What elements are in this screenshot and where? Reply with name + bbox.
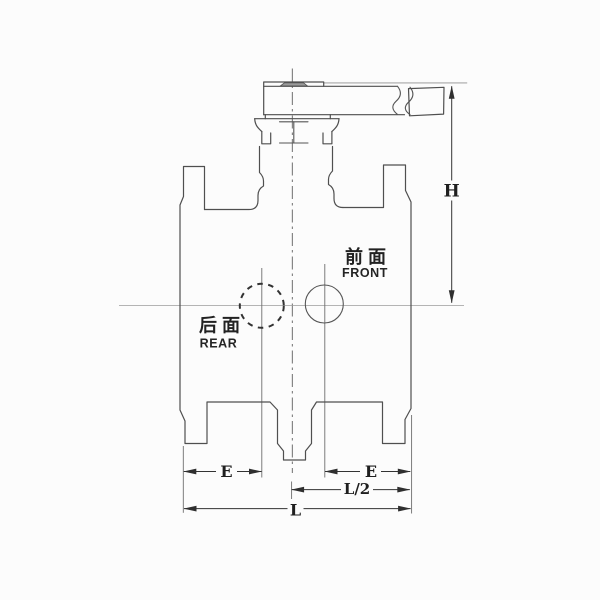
handle-end-piece	[409, 87, 445, 116]
dim-label-l2: L/2	[344, 480, 370, 498]
valve-body-outline	[180, 147, 411, 461]
dimension-e-right: E	[325, 462, 410, 481]
dimension-e-left: E	[184, 462, 262, 481]
dimension-h: H	[444, 86, 460, 303]
drawing-canvas: H E E L/2 L 前面 FRONT 后	[0, 0, 600, 600]
break-symbol	[393, 86, 413, 114]
label-front-cn: 前面	[345, 246, 391, 267]
front-port-circle	[305, 285, 343, 323]
valve-technical-drawing: H E E L/2 L 前面 FRONT 后	[0, 0, 600, 600]
dimension-l: L	[184, 501, 411, 520]
dim-label-l: L	[290, 501, 301, 520]
dim-label-e-right: E	[365, 462, 377, 481]
face-labels: 前面 FRONT 后面 REAR	[199, 246, 391, 351]
extension-lines	[183, 264, 411, 514]
centerlines	[119, 69, 464, 474]
bonnet-gland	[255, 119, 339, 144]
neck-right	[329, 147, 344, 208]
handle-nut	[280, 83, 307, 86]
dimension-l2: L/2	[292, 480, 410, 498]
label-front-en: FRONT	[342, 266, 388, 280]
handle-assembly	[264, 82, 468, 119]
neck-left	[205, 147, 264, 210]
valve-stem	[280, 122, 309, 143]
dim-label-e-left: E	[220, 462, 232, 481]
handle-cap-plate	[264, 82, 324, 115]
label-rear-cn: 后面	[199, 316, 245, 336]
dim-label-h: H	[444, 182, 460, 202]
label-rear-en: REAR	[200, 337, 238, 351]
